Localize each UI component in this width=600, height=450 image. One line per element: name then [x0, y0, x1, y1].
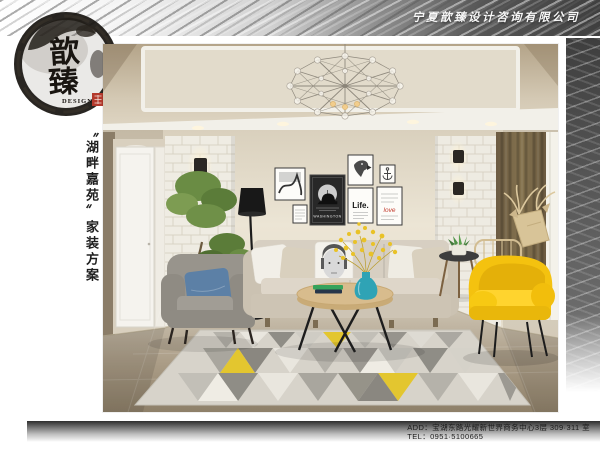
interior-render-photo: WASHINGTON Life.	[103, 44, 558, 412]
right-brush-band	[566, 38, 600, 392]
frame-washington: WASHINGTON	[310, 175, 345, 225]
frame-love: love	[377, 187, 402, 225]
project-title-vertical: 〝湖畔嘉苑〟家装方案	[82, 124, 101, 304]
white-door	[116, 147, 154, 327]
presentation-page: 宁夏歆臻设计咨询有限公司 歆 臻 DESIGN	[0, 0, 600, 450]
frame-abstract	[275, 168, 305, 200]
company-name: 宁夏歆臻设计咨询有限公司	[412, 9, 580, 25]
poster-love-label: love	[384, 207, 396, 214]
poster-life-label: Life.	[352, 201, 368, 210]
books	[313, 285, 343, 294]
contact-block: ADD：宝湖东路光耀新世界商务中心3层 309·311 室 TEL：0951·5…	[407, 424, 590, 441]
frame-eagle	[348, 155, 373, 185]
poster-washington-label: WASHINGTON	[313, 215, 341, 219]
footer-bar: ADD：宝湖东路光耀新世界商务中心3层 309·311 室 TEL：0951·5…	[27, 421, 600, 442]
left-corridor	[103, 132, 167, 338]
brand-design-label: DESIGN	[62, 98, 93, 105]
ceiling	[103, 44, 558, 144]
brand-char-bottom: 臻	[47, 65, 80, 100]
wall-sconce	[453, 182, 464, 195]
frame-anchor	[380, 165, 395, 183]
footer-tel: TEL：0951·5100665	[407, 433, 590, 442]
frame-life: Life.	[348, 188, 373, 223]
frame-small-text	[293, 205, 307, 223]
wall-sconce	[453, 150, 464, 163]
